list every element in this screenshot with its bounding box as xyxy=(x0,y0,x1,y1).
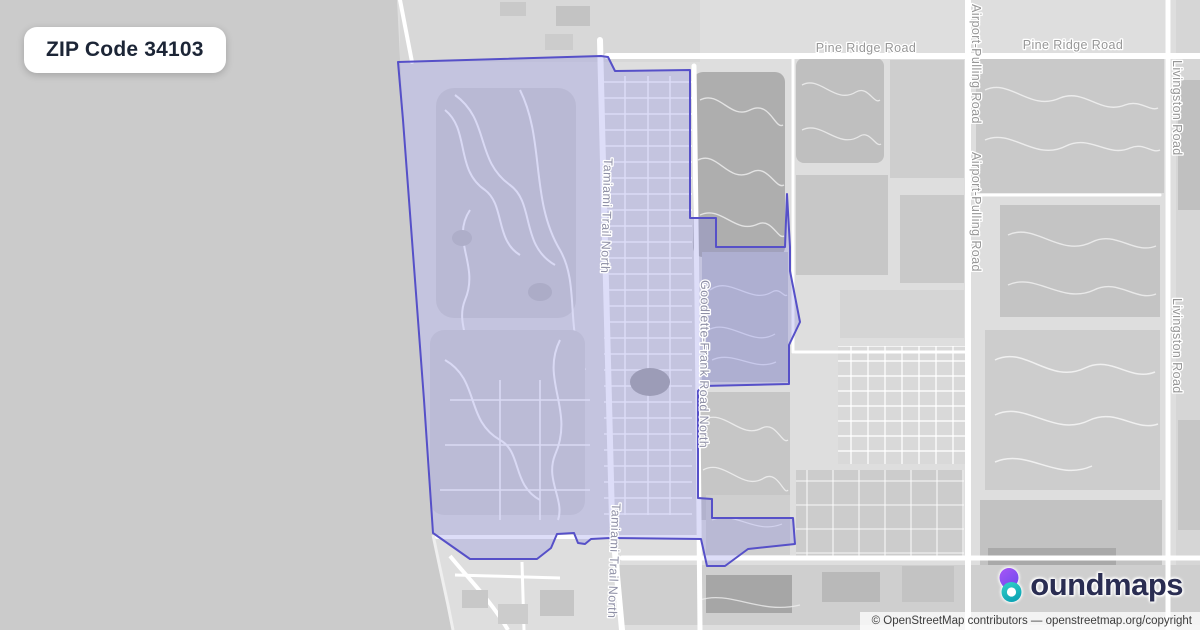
livingston-road-label-2: Livingston Road xyxy=(1170,298,1184,394)
gulf-water xyxy=(0,0,452,630)
livingston-road-label-1: Livingston Road xyxy=(1170,60,1184,156)
zip-code-badge: ZIP Code 34103 xyxy=(24,27,226,73)
attribution-text[interactable]: © OpenStreetMap contributors — openstree… xyxy=(872,615,1192,627)
park-extra-tint xyxy=(702,252,788,382)
map-canvas[interactable]: Pine Ridge Road Pine Ridge Road Airport-… xyxy=(0,0,1200,630)
airport-pulling-road-label-2: Airport-Pulling Road xyxy=(969,152,983,272)
map-page: Pine Ridge Road Pine Ridge Road Airport-… xyxy=(0,0,1200,630)
pine-ridge-road-label-1: Pine Ridge Road xyxy=(816,41,917,55)
boundmaps-wordmark: oundmaps xyxy=(1030,567,1183,603)
boundmaps-pin-icon xyxy=(997,566,1029,604)
attribution-bar: © OpenStreetMap contributors — openstree… xyxy=(860,612,1200,630)
zip-code-label: ZIP Code 34103 xyxy=(46,38,204,62)
boundmaps-logo[interactable]: oundmaps xyxy=(997,566,1183,604)
airport-pulling-road-label-1: Airport-Pulling Road xyxy=(969,4,983,124)
pine-ridge-road-label-2: Pine Ridge Road xyxy=(1023,38,1124,52)
goodlette-frank-label: Goodlette-Frank Road North xyxy=(697,280,712,448)
